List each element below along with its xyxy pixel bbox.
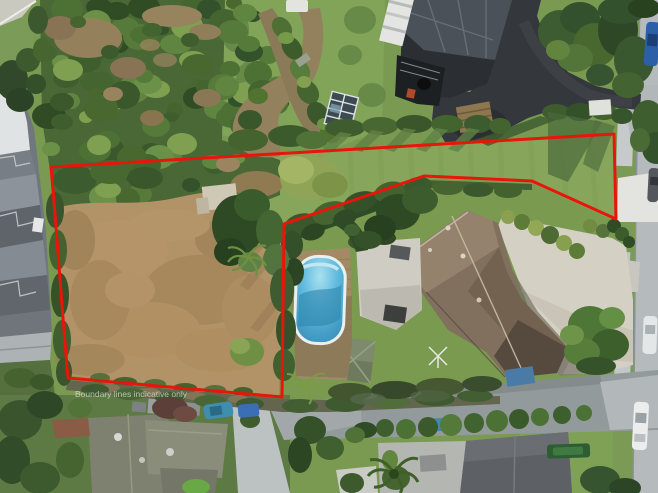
svg-text:Boundary lines indicative only: Boundary lines indicative only: [75, 389, 188, 399]
